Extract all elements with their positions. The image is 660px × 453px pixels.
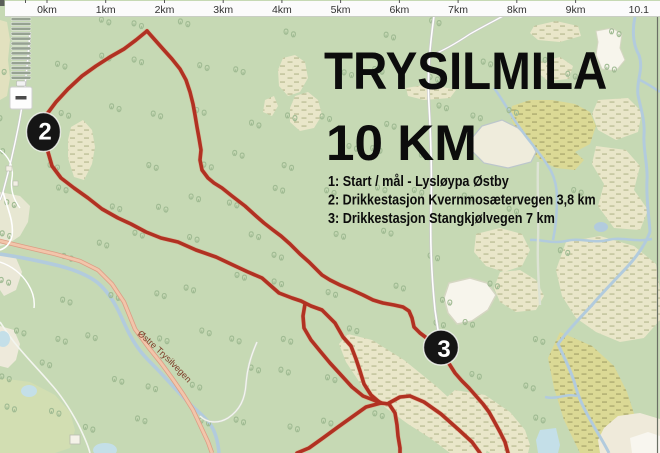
svg-text:3km: 3km: [213, 4, 233, 16]
svg-text:8km: 8km: [507, 4, 527, 16]
svg-text:0km: 0km: [37, 4, 57, 16]
svg-text:3: 3: [437, 336, 450, 363]
svg-text:7km: 7km: [448, 4, 468, 16]
svg-text:10 KM: 10 KM: [326, 115, 477, 171]
svg-text:2: Drikkestasjon Kvernmosæterv: 2: Drikkestasjon Kvernmosætervegen 3,8 k…: [328, 192, 596, 208]
svg-text:1: Start / mål - Lysløypa Østb: 1: Start / mål - Lysløypa Østby: [328, 173, 509, 189]
svg-text:2km: 2km: [155, 4, 175, 16]
svg-text:2: 2: [38, 119, 51, 146]
svg-text:1km: 1km: [96, 4, 116, 16]
svg-text:TRYSILMILA: TRYSILMILA: [324, 41, 607, 101]
svg-text:6km: 6km: [389, 4, 409, 16]
svg-text:9km: 9km: [566, 4, 586, 16]
svg-text:4km: 4km: [272, 4, 292, 16]
svg-text:3: Drikkestasjon Stangkjølvege: 3: Drikkestasjon Stangkjølvegen 7 km: [328, 210, 555, 226]
svg-text:5km: 5km: [331, 4, 351, 16]
svg-text:10.1: 10.1: [629, 4, 650, 16]
